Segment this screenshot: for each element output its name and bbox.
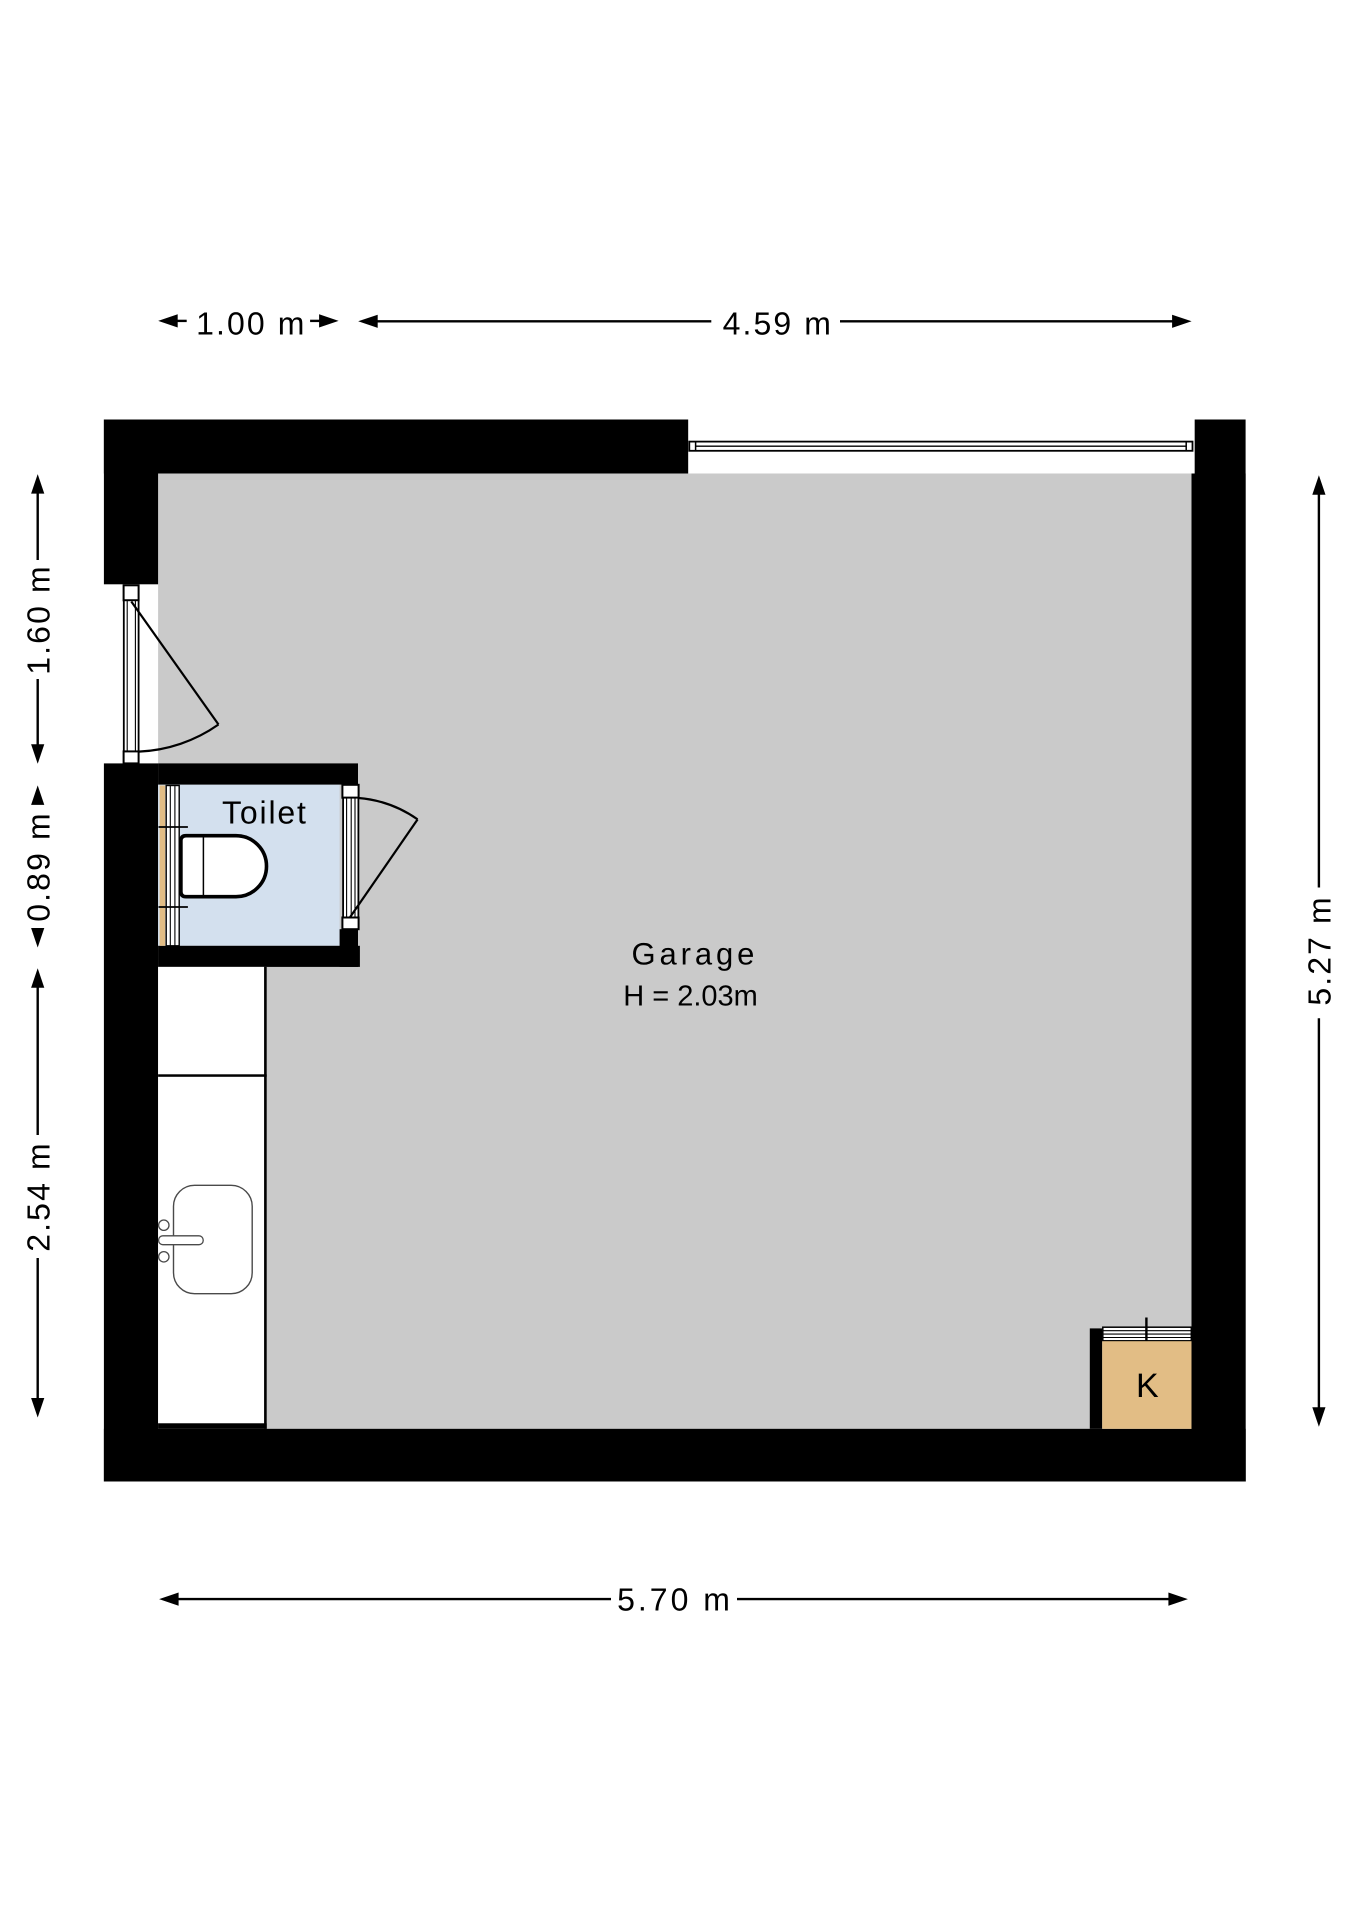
svg-text:0.89 m: 0.89 m: [20, 811, 56, 921]
svg-text:5.27 m: 5.27 m: [1302, 895, 1338, 1005]
svg-text:H = 2.03m: H = 2.03m: [623, 981, 758, 1013]
svg-text:2.54 m: 2.54 m: [20, 1141, 56, 1251]
svg-text:5.70 m: 5.70 m: [617, 1582, 733, 1618]
svg-text:K: K: [1136, 1367, 1159, 1405]
svg-text:1.00 m: 1.00 m: [196, 306, 306, 342]
svg-text:Toilet: Toilet: [222, 795, 308, 831]
svg-text:1.60 m: 1.60 m: [20, 564, 56, 674]
svg-text:Garage: Garage: [631, 936, 758, 971]
svg-text:4.59 m: 4.59 m: [723, 305, 833, 341]
